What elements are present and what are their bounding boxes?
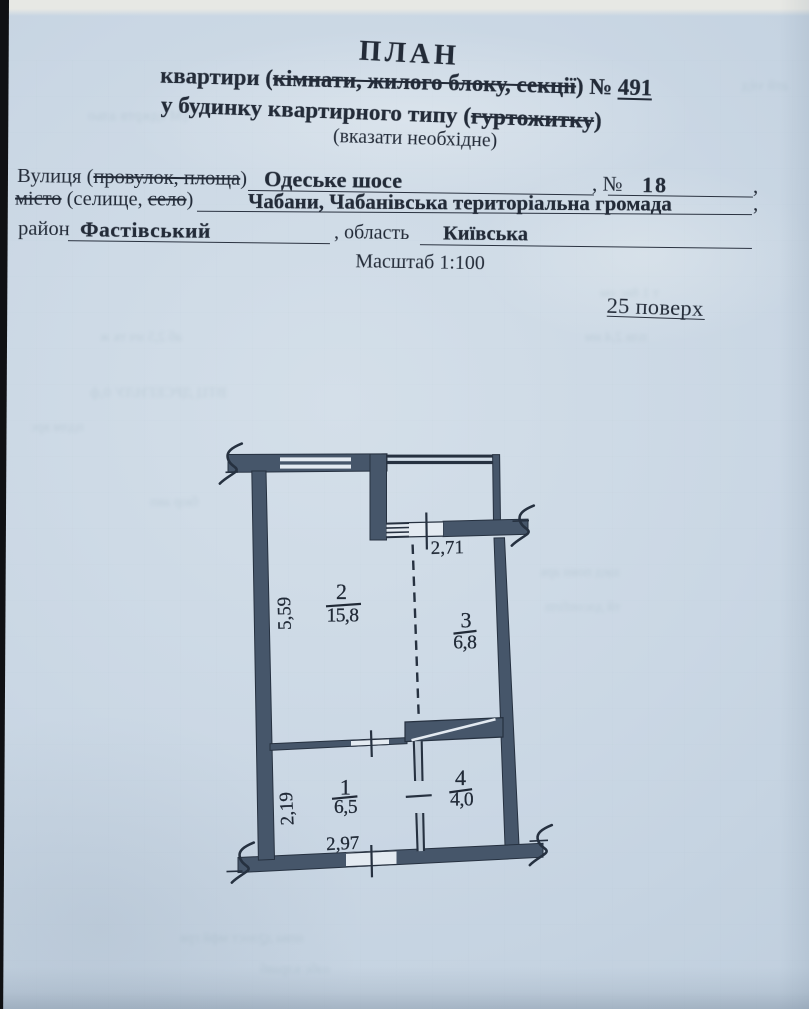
svg-text:2,71: 2,71 (430, 537, 464, 559)
svg-text:2: 2 (336, 579, 347, 604)
svg-text:6,8: 6,8 (453, 632, 476, 653)
svg-text:5,59: 5,59 (274, 596, 296, 630)
svg-text:3: 3 (461, 607, 472, 632)
svg-text:4: 4 (455, 765, 466, 790)
svg-text:2,19: 2,19 (276, 791, 299, 825)
svg-text:1: 1 (340, 775, 351, 800)
svg-text:15,8: 15,8 (327, 605, 359, 626)
svg-text:6,5: 6,5 (334, 797, 357, 818)
svg-text:4,0: 4,0 (450, 789, 473, 810)
svg-text:2,97: 2,97 (326, 833, 360, 855)
